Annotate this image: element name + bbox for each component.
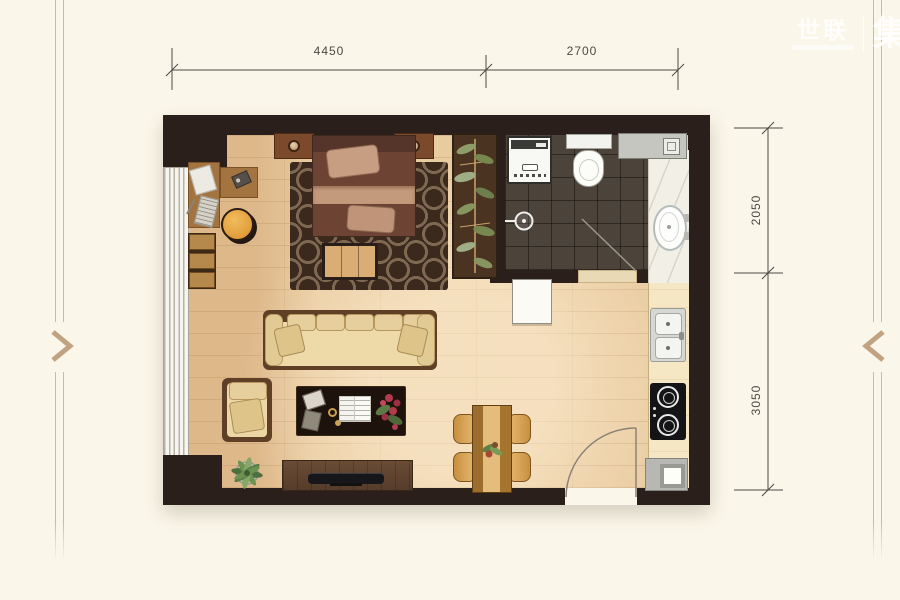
bed-bench [322,243,378,280]
coffee-table [296,386,406,436]
window [163,167,189,460]
dining-chair [453,414,473,444]
armchair [222,378,272,442]
right-rail-line [873,372,874,560]
dining-chair [511,452,531,482]
left-rail-line [63,372,64,560]
table-frame [301,409,322,431]
left-rail-line [55,0,56,322]
bed-pillow [346,204,396,233]
toilet-bowl [573,150,604,187]
watermark: 世联 集 [792,16,900,52]
bathroom-sink [653,205,687,251]
dimension-label-right-upper: 2050 [749,190,763,230]
floorplan-page: 世联 集 4450 2700 2050 3050 [0,0,900,600]
bed-pillow [325,144,380,179]
hall-cabinet [512,279,552,324]
table-dish [335,420,341,426]
wall-corner-bottom-left [163,455,222,505]
desk-drawers [188,233,216,289]
right-rail-line [881,372,882,560]
nightstand-left [274,133,314,159]
sink-tap [684,214,689,222]
dimension-label-top-left: 4450 [172,44,486,58]
watermark-divider [863,16,864,52]
plant-shelf [452,133,498,279]
sink-tap [684,232,689,240]
open-book [354,396,371,422]
bathroom-door-threshold [578,270,637,283]
watermark-brand: 世联 [797,19,849,42]
kitchen-cooktop [650,383,686,440]
dimension-label-top-right: 2700 [486,44,678,58]
kitchen-appliance [645,458,688,491]
washing-machine [507,136,552,184]
wall-corner-top-left [163,115,227,167]
table-frame [302,389,326,410]
watermark-mark: 集 [873,17,900,51]
wall-top [163,115,710,135]
table-flowers-icon [375,390,405,434]
floor-plant-icon [220,446,274,498]
dimension-label-right-lower: 3050 [749,380,763,420]
tv-cabinet [282,460,413,491]
bed [312,135,416,237]
stool [221,208,254,241]
sofa [263,310,437,370]
dining-table [472,405,512,493]
shelf-plants-icon [454,135,496,277]
bathroom-cabinet [618,133,687,159]
dining-chair [453,452,473,482]
watermark-subtext [792,45,854,50]
table-centerpiece-icon [482,436,504,462]
chevron-right-icon[interactable] [47,328,75,364]
toilet-tank [566,134,612,149]
table-dish [328,408,337,417]
dining-chair [511,414,531,444]
kitchen-sink [650,308,686,362]
chevron-left-icon[interactable] [861,328,889,364]
left-rail-line [55,372,56,560]
wall-right [688,115,710,505]
tv-stand [330,483,362,486]
armchair-pillow [229,398,266,435]
left-rail-line [63,0,64,322]
right-dimension-line [734,122,783,496]
